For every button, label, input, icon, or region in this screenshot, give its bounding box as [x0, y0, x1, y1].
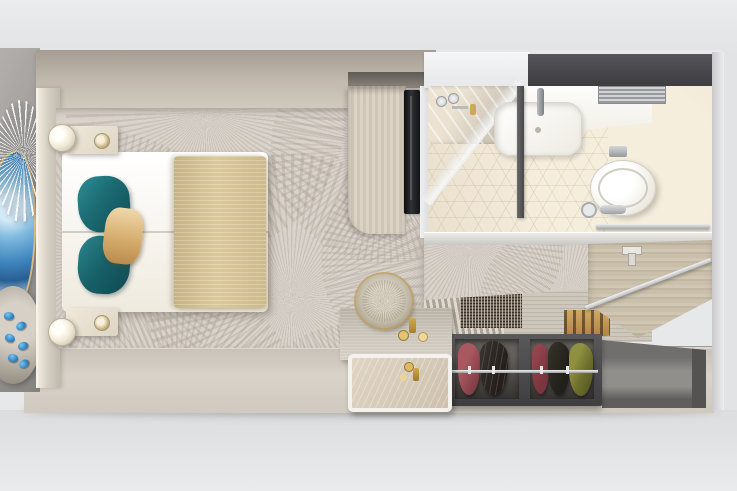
sink-faucet	[537, 88, 544, 116]
glassware	[436, 96, 447, 107]
towel-rail	[596, 224, 710, 229]
sink-drain	[535, 127, 541, 133]
tweed-mat	[460, 294, 522, 328]
perfume-bottle	[409, 318, 416, 333]
hanger-clip	[566, 366, 569, 374]
toilet-seat	[598, 168, 648, 208]
exterior-background-bottom	[0, 410, 737, 491]
toilet-paper-holder	[581, 202, 597, 218]
shelf-chrome-bar	[452, 106, 468, 109]
gold-bed-runner	[174, 156, 266, 308]
gold-bottle	[413, 368, 419, 381]
rattan-chair	[356, 274, 412, 328]
gold-toiletry-bottle	[470, 104, 476, 115]
door-handle-stem	[628, 253, 636, 266]
perfume-bottle	[398, 330, 409, 341]
runner-texture	[174, 156, 266, 308]
shower-mixer	[609, 146, 627, 157]
tv-screen-reflection	[410, 96, 412, 200]
vanity-tray	[348, 354, 452, 412]
tv-column-wood-panel	[348, 86, 406, 234]
hanger-clip	[468, 366, 471, 374]
table-lamp	[48, 124, 76, 152]
shower-frame-post	[517, 86, 524, 218]
wall-recess-vent	[598, 86, 666, 104]
hanger-clip	[492, 366, 495, 374]
glassware	[448, 93, 459, 104]
toilet-brush	[600, 205, 626, 214]
hanging-rail	[452, 370, 598, 373]
nightstand-ornament	[94, 133, 110, 149]
chair-weave	[362, 280, 406, 322]
exterior-background-top	[0, 0, 737, 50]
exterior-background-right	[722, 50, 737, 410]
perfume-bottle	[418, 332, 428, 342]
nightstand-ornament	[94, 315, 110, 331]
wall-mounted-tv	[404, 90, 420, 214]
closet-bay	[455, 339, 519, 399]
bathroom-charcoal-wall	[528, 54, 714, 88]
right-exterior-wall	[712, 52, 724, 410]
hanger-clip	[540, 366, 543, 374]
stateroom-floorplan-render	[0, 0, 737, 491]
tray-texture	[352, 358, 448, 408]
table-lamp	[48, 318, 76, 346]
gold-bottle	[400, 374, 407, 381]
